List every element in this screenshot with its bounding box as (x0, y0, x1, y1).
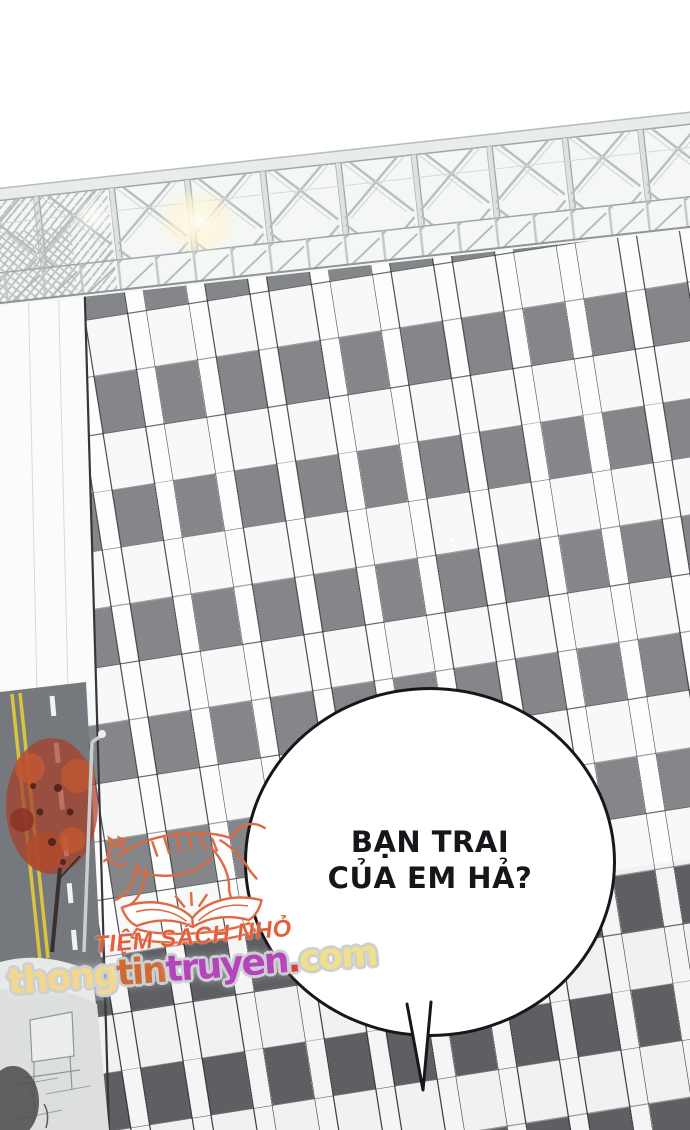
speech-text-line2: CỦA EM HẢ? (328, 860, 533, 896)
window-glint (450, 537, 455, 542)
speech-text: BẠN TRAI CỦA EM HẢ? (328, 824, 533, 896)
speech-bubble: BẠN TRAI CỦA EM HẢ? (244, 687, 616, 1037)
window-glint (556, 564, 560, 568)
lens-flare (138, 172, 258, 272)
lens-flare-small (62, 188, 126, 244)
comic-panel: BẠN TRAI CỦA EM HẢ? (0, 0, 690, 1130)
speech-text-line1: BẠN TRAI (328, 824, 533, 860)
